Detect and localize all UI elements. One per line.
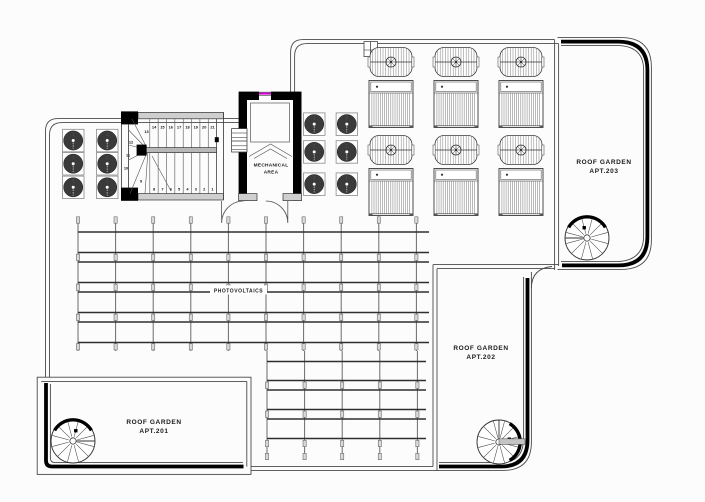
elevator-car bbox=[251, 103, 290, 142]
step-number: 7 bbox=[161, 186, 163, 191]
stair-rail-end bbox=[215, 137, 219, 142]
hvac-unit bbox=[97, 129, 119, 152]
apt202-label-line2: APT.202 bbox=[466, 354, 495, 361]
lounger-set bbox=[433, 48, 479, 128]
step-number: 20 bbox=[202, 125, 206, 130]
spiral-stair-apt203 bbox=[565, 216, 609, 260]
lounge-area bbox=[368, 48, 544, 216]
photovoltaics-grid-upper bbox=[76, 217, 429, 351]
step-number: 1 bbox=[211, 186, 214, 191]
deck-doors bbox=[222, 201, 288, 223]
hvac-unit bbox=[63, 129, 85, 152]
stair-top-wall bbox=[138, 112, 223, 118]
roof-plan-drawing: PHOTOVOLTAICS MECHANICAL AREA bbox=[0, 0, 705, 502]
hvac-unit bbox=[63, 176, 85, 199]
hvac-unit bbox=[97, 176, 119, 199]
apt201-label-line2: APT.201 bbox=[139, 428, 168, 435]
lounger-set bbox=[498, 136, 544, 216]
step-number: 6 bbox=[170, 186, 173, 191]
step-number: 11 bbox=[126, 153, 131, 158]
step-number: 12 bbox=[129, 140, 134, 145]
stair-center-rail bbox=[146, 148, 217, 153]
step-number: 14 bbox=[152, 125, 157, 130]
apt203-label-line2: APT.203 bbox=[589, 168, 618, 175]
hvac-unit bbox=[336, 141, 358, 164]
step-number: 15 bbox=[160, 125, 165, 130]
step-number: 10 bbox=[124, 166, 128, 171]
lounger-set bbox=[368, 48, 414, 128]
hvac-unit bbox=[336, 113, 358, 135]
stair-newel bbox=[137, 145, 147, 156]
roof-plan-canvas: PHOTOVOLTAICS MECHANICAL AREA bbox=[0, 0, 705, 502]
step-number: 13 bbox=[144, 129, 149, 134]
stair-column-top-left bbox=[121, 111, 138, 124]
hvac-bank-left bbox=[63, 129, 119, 198]
lounger-set bbox=[498, 48, 544, 128]
step-number: 9 bbox=[140, 179, 143, 184]
step-number: 2 bbox=[203, 186, 206, 191]
step-number: 17 bbox=[177, 125, 181, 130]
apt203-label-line1: ROOF GARDEN bbox=[576, 159, 631, 166]
elevator-marker bbox=[259, 93, 271, 95]
wall-equipment bbox=[232, 129, 247, 152]
hvac-unit bbox=[304, 173, 326, 196]
hvac-unit bbox=[63, 153, 85, 176]
roof-railings bbox=[46, 42, 647, 467]
step-number: 4 bbox=[186, 186, 189, 191]
step-number: 8 bbox=[153, 186, 156, 191]
spiral-stair-apt202-landing bbox=[499, 439, 525, 445]
lounger-set bbox=[368, 136, 414, 216]
hvac-unit bbox=[304, 141, 326, 164]
step-number: 18 bbox=[185, 125, 190, 130]
mechanical-area-label-line1: MECHANICAL bbox=[254, 163, 289, 169]
photovoltaics-label: PHOTOVOLTAICS bbox=[214, 289, 263, 295]
photovoltaics-grid-lower bbox=[265, 351, 426, 460]
step-number: 19 bbox=[194, 125, 199, 130]
hvac-unit bbox=[97, 153, 119, 176]
apt202-label-line1: ROOF GARDEN bbox=[453, 345, 508, 352]
hvac-unit bbox=[304, 113, 326, 135]
step-number: 3 bbox=[195, 186, 198, 191]
step-number: 5 bbox=[178, 186, 181, 191]
stair-bottom-wall bbox=[138, 194, 223, 200]
door-mechanical bbox=[266, 201, 288, 223]
stair-step-numbers: 14 15 16 17 18 19 20 21 13 12 11 10 9 8 … bbox=[124, 125, 216, 192]
spiral-stair-apt201 bbox=[51, 419, 95, 463]
lounger-set bbox=[433, 136, 479, 216]
stair-column-bottom-left bbox=[121, 188, 138, 201]
mechanical-area-label-line2: AREA bbox=[264, 170, 279, 176]
apt201-label-line1: ROOF GARDEN bbox=[126, 419, 181, 426]
hvac-bank-right bbox=[304, 113, 358, 195]
hvac-unit bbox=[336, 173, 358, 196]
mechanical-shaft: MECHANICAL AREA bbox=[239, 92, 302, 201]
door-stair-lobby bbox=[222, 201, 244, 223]
step-number: 16 bbox=[169, 125, 174, 130]
step-number: 21 bbox=[210, 125, 215, 130]
